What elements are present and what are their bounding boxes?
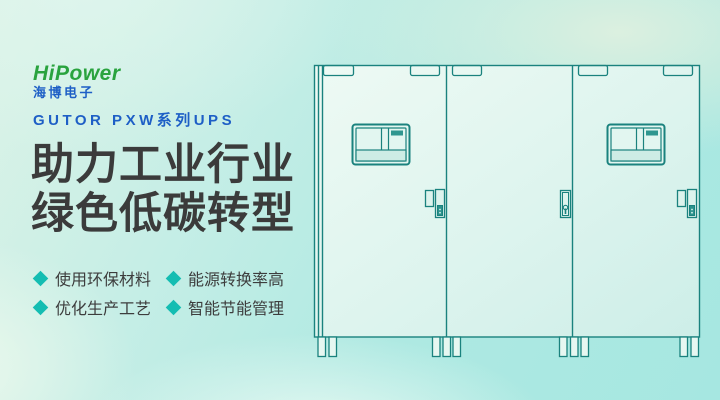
feature-item-smart-energy-management: 智能节能管理	[168, 296, 284, 318]
headline: 助力工业行业 绿色低碳转型	[31, 141, 295, 239]
brand-logo-text: HiPower	[33, 63, 121, 85]
diamond-bullet-icon	[166, 270, 182, 286]
feature-label: 使用环保材料	[55, 266, 151, 290]
diamond-bullet-icon	[166, 299, 182, 315]
feature-item-production-process: 优化生产工艺	[35, 296, 168, 318]
brand-logo-subtext: 海博电子	[33, 86, 121, 100]
feature-list: 使用环保材料 能源转换率高 优化生产工艺 智能节能管理	[35, 267, 284, 318]
promo-banner: HiPower 海博电子 GUTOR PXW系列UPS 助力工业行业 绿色低碳转…	[0, 0, 720, 400]
content-panel: HiPower 海博电子 GUTOR PXW系列UPS 助力工业行业 绿色低碳转…	[0, 0, 720, 400]
product-series-label: GUTOR PXW系列UPS	[33, 109, 235, 130]
diamond-bullet-icon	[33, 299, 49, 315]
feature-item-eco-materials: 使用环保材料	[35, 267, 168, 289]
feature-item-energy-conversion: 能源转换率高	[168, 267, 284, 289]
feature-label: 能源转换率高	[188, 266, 284, 290]
headline-line1: 助力工业行业	[31, 141, 295, 190]
diamond-bullet-icon	[33, 270, 49, 286]
feature-label: 智能节能管理	[188, 295, 284, 319]
feature-label: 优化生产工艺	[55, 295, 151, 319]
brand-logo: HiPower 海博电子	[33, 63, 121, 100]
headline-line2: 绿色低碳转型	[31, 190, 295, 239]
